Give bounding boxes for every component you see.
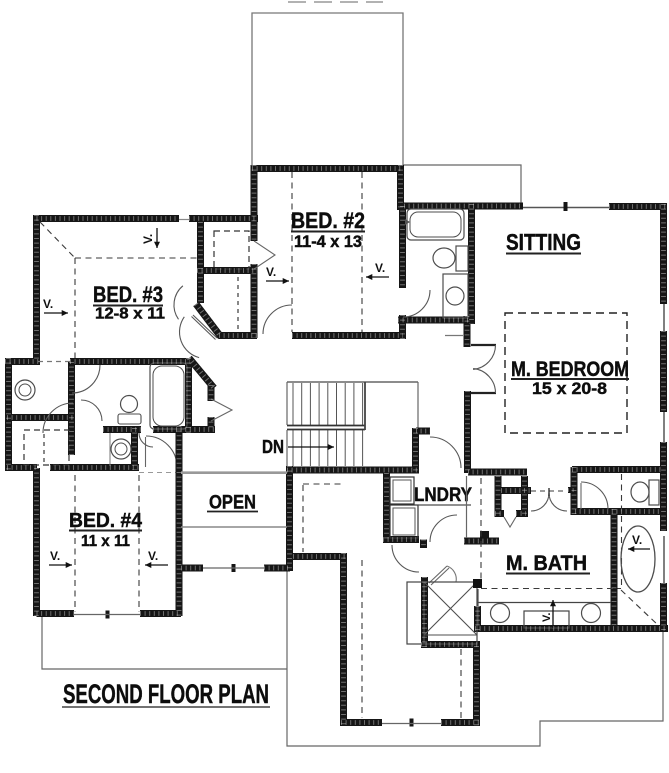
svg-text:DN: DN [262, 437, 284, 457]
svg-text:12-8 x 11: 12-8 x 11 [95, 306, 165, 323]
svg-text:LNDRY: LNDRY [414, 485, 472, 506]
svg-text:V.: V. [541, 613, 553, 622]
svg-text:BED. #2: BED. #2 [291, 208, 365, 233]
svg-text:15 x 20-8: 15 x 20-8 [532, 379, 607, 398]
svg-text:OPEN: OPEN [209, 492, 256, 514]
svg-text:V.: V. [43, 297, 53, 311]
svg-text:BED. #4: BED. #4 [69, 510, 143, 532]
svg-text:M. BATH: M. BATH [506, 552, 587, 575]
svg-text:V.: V. [50, 549, 60, 563]
svg-text:11 x 11: 11 x 11 [81, 533, 130, 550]
svg-text:SITTING: SITTING [506, 229, 581, 255]
svg-text:V.: V. [632, 533, 642, 547]
svg-text:11-4 x 13: 11-4 x 13 [294, 233, 362, 251]
svg-text:V.: V. [266, 265, 276, 279]
svg-text:M. BEDROOM: M. BEDROOM [511, 358, 629, 381]
svg-text:SECOND FLOOR PLAN: SECOND FLOOR PLAN [63, 679, 269, 709]
svg-text:BED. #3: BED. #3 [93, 282, 163, 307]
svg-text:V.: V. [148, 549, 158, 563]
svg-text:V.: V. [141, 234, 155, 244]
svg-text:V.: V. [375, 261, 385, 275]
